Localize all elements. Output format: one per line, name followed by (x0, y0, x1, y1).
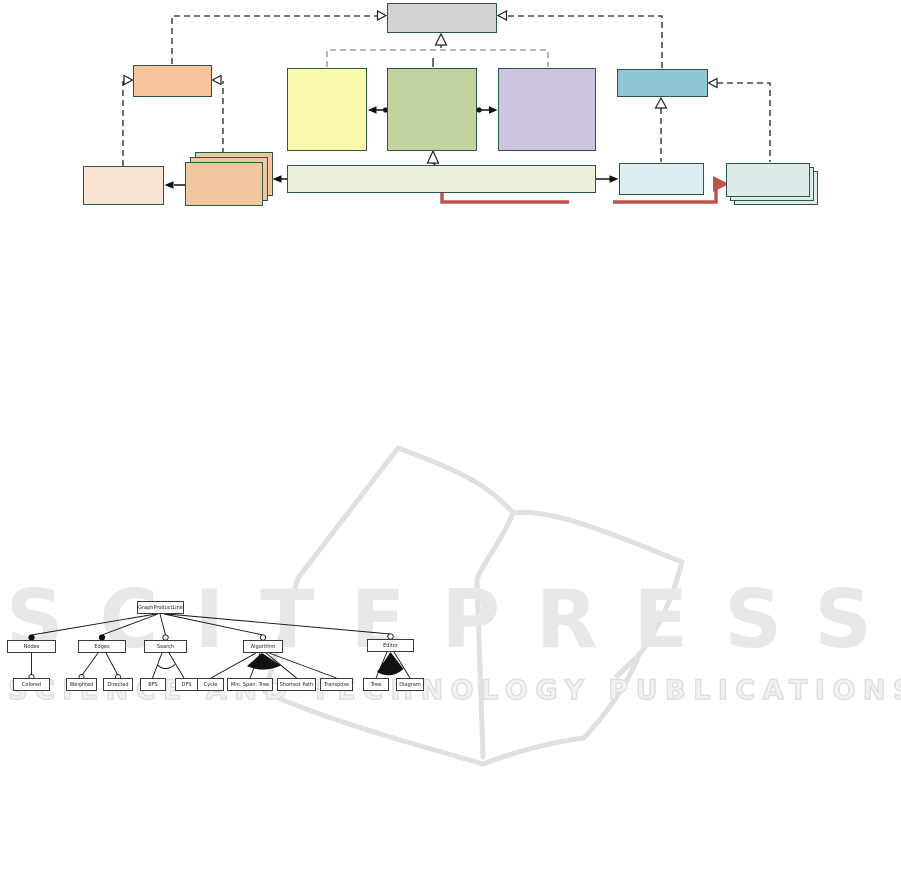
orange-box (133, 65, 212, 97)
feature-label: Algorithm (251, 644, 276, 650)
assoc-dot-olive-right (476, 107, 481, 112)
feature-root: GraphProductLine (137, 601, 184, 614)
edge-root-edges (102, 614, 158, 635)
edge-root-algorithm (164, 614, 263, 635)
feature-dfs: DFS (175, 678, 198, 691)
feature-bfs: BFS (140, 678, 166, 691)
purple-box (498, 68, 596, 151)
feature-label: DFS (182, 682, 192, 688)
feature-model-figure: GraphProductLine Nodes Edges Search Algo… (0, 595, 460, 710)
filled-arrow-into-peach (165, 181, 174, 189)
feature-edges: Edges (78, 640, 126, 653)
hollow-arrow-teal-bottom (656, 98, 667, 108)
feature-label: Colored (22, 682, 41, 688)
hollow-arrow-olive-bottom (428, 151, 439, 163)
feature-nodes: Nodes (7, 640, 56, 653)
feature-label: Min. Span. Tree (231, 682, 269, 688)
peach-box (83, 166, 164, 205)
feature-tree: Tree (363, 678, 389, 691)
hollow-arrow-into-orange-right (213, 76, 222, 85)
alternative-group-arc (158, 665, 176, 669)
feature-label: Transpose (324, 682, 349, 688)
edge-edges-weighted (83, 653, 99, 675)
feature-transpose: Transpose (320, 678, 353, 691)
dashed-line-orange-to-gray (172, 16, 378, 64)
stacked-blue-box-front (726, 163, 810, 197)
feature-label: Search (157, 644, 174, 650)
feature-shortest-path: Shortest Path (277, 678, 316, 691)
dashed-bracket (327, 50, 548, 67)
edge-search-dfs (169, 653, 184, 678)
top-gray-box (387, 3, 497, 33)
dashed-line-stackedblue-to-teal (717, 83, 770, 162)
feature-label: Weighted (70, 682, 94, 688)
feature-label: BFS (148, 682, 157, 688)
class-diagram-figure (0, 0, 901, 240)
feature-label: Directed (107, 682, 128, 688)
paper-page: SCITEPRESS SCIENCE AND TECHNOLOGY PUBLIC… (0, 0, 901, 874)
feature-label: Shortest Path (280, 682, 314, 688)
feature-model-edges (0, 595, 460, 710)
feature-label: Diagram (399, 682, 420, 688)
edge-edges-directed (106, 653, 118, 675)
feature-weighted: Weighted (66, 678, 97, 691)
hollow-arrow-into-orange-left (124, 76, 133, 85)
feature-min-span-tree: Min. Span. Tree (227, 678, 273, 691)
teal-box (617, 69, 708, 97)
feature-root-label: GraphProductLine (138, 605, 183, 611)
edge-root-nodes (32, 614, 157, 635)
filled-arrow-into-yellow (368, 106, 377, 114)
feature-label: Cycle (204, 682, 218, 688)
filled-arrow-into-stackedorange (273, 175, 282, 183)
light-blue-box (619, 163, 704, 195)
feature-search: Search (144, 640, 187, 653)
feature-algorithm: Algorithm (243, 640, 283, 653)
edge-root-search (160, 614, 166, 635)
hollow-arrow-into-gray-right (498, 11, 507, 20)
filled-arrow-into-lightblue (610, 175, 619, 183)
feature-colored: Colored (13, 678, 50, 691)
feature-label: Edges (94, 644, 109, 650)
dashed-line-teal-to-gray (506, 16, 662, 68)
or-group-wedge-editor (377, 652, 404, 675)
hollow-arrow-gray-bottom (436, 34, 447, 45)
filled-arrow-into-purple (489, 106, 498, 114)
feature-directed: Directed (103, 678, 133, 691)
feature-editor: Editor (367, 639, 414, 652)
yellow-box (287, 68, 367, 151)
feature-label: Tree (371, 682, 381, 688)
wide-pale-green-box (287, 165, 596, 193)
stacked-orange-box-front (185, 162, 263, 206)
hollow-arrow-teal-right (709, 79, 718, 88)
feature-label: Nodes (24, 644, 40, 650)
feature-label: Editor (383, 643, 398, 649)
edge-root-editor (167, 614, 391, 634)
feature-diagram: Diagram (396, 678, 424, 691)
olive-box (387, 68, 477, 151)
hollow-arrow-into-gray-left (378, 11, 387, 20)
red-bracket-left (442, 192, 569, 202)
feature-cycle: Cycle (197, 678, 224, 691)
edge-search-bfs (153, 653, 163, 678)
